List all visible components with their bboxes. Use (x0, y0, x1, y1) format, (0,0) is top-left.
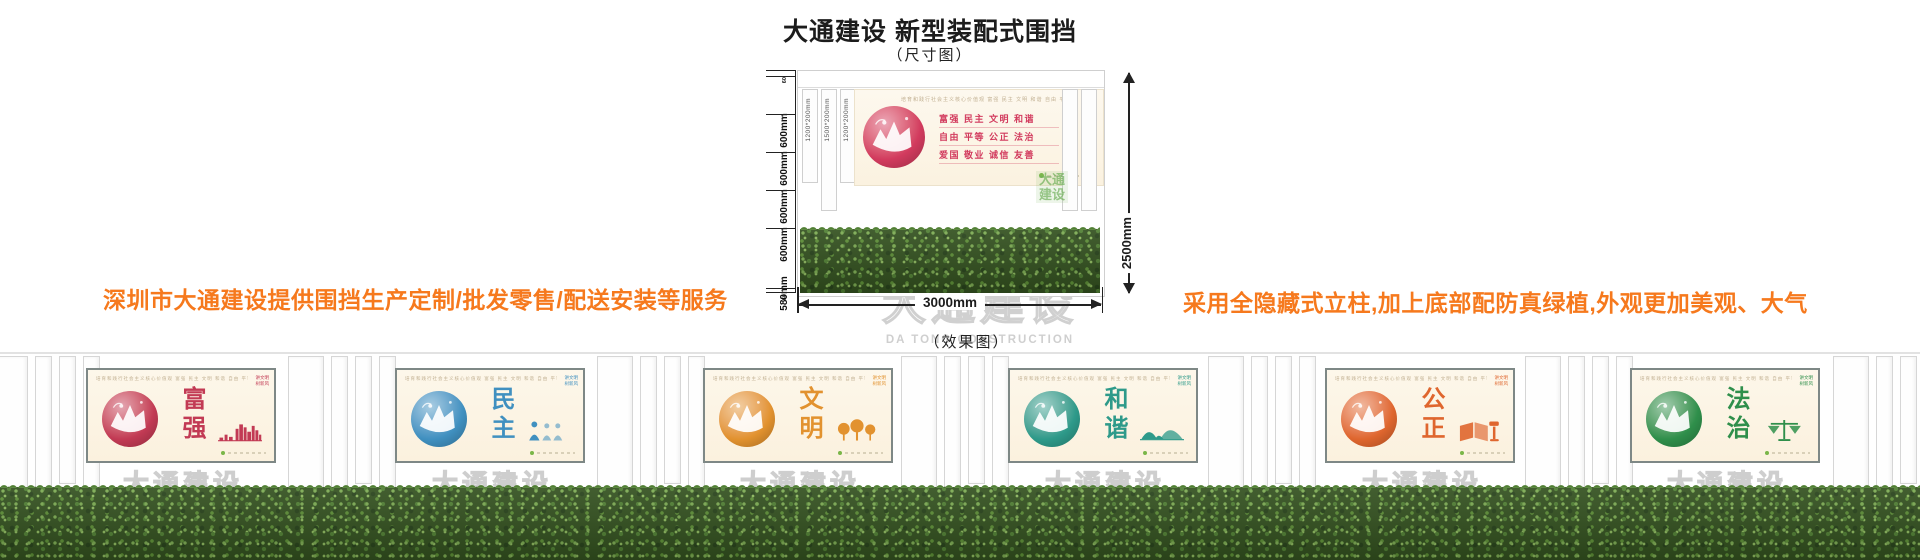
panel-corner-text: 讲文明树新风 (1495, 375, 1509, 386)
hidden-post-group (1525, 356, 1633, 500)
post-slat (1568, 356, 1585, 500)
post-size-label: 1500*200mm (824, 98, 831, 142)
panel-title: 富强 (174, 386, 209, 452)
fence-panel: 培育和践行社会主义核心价值观 富强 民主 文明 和谐 自由 平等 公正 法治 爱… (703, 368, 893, 463)
post-slat (597, 356, 633, 488)
green-dot-icon (838, 451, 842, 455)
page-title: 大通建设 新型装配式围挡 (630, 12, 1230, 48)
post-size-label: 1200*200mm (805, 98, 812, 142)
post (1081, 89, 1097, 211)
slogan-line: 自由 平等 公正 法治 (939, 130, 1059, 146)
fence-panel: 培育和践行社会主义核心价值观 富强 民主 文明 和谐 自由 平等 公正 法治 爱… (86, 368, 276, 463)
panel-corner-text: 讲文明树新风 (1178, 375, 1192, 386)
green-dot-icon (1765, 451, 1769, 455)
people-icon (527, 418, 571, 444)
panel-corner-text: 讲文明树新风 (1800, 375, 1814, 386)
panel-footer-mark (221, 451, 266, 455)
height-segment: 580mm (766, 228, 796, 288)
post-size-label: 1200*200mm (843, 98, 850, 142)
post: 1500*200mm (821, 89, 837, 211)
book-gavel-icon (1457, 418, 1501, 444)
fence-panel: 培育和践行社会主义核心价值观 富强 民主 文明 和谐 自由 平等 公正 法治 爱… (1630, 368, 1820, 463)
papercut-circle-art (863, 106, 925, 168)
slogan-line: 富强 民主 文明 和谐 (939, 112, 1059, 128)
panel-corner-text: 讲文明树新风 (873, 375, 887, 386)
post-slat (944, 356, 961, 500)
post-slat (331, 356, 348, 500)
panel-header-text: 培育和践行社会主义核心价值观 富强 民主 文明 和谐 自由 平等 公正 法治 爱… (405, 376, 557, 382)
green-dot-icon (1143, 451, 1147, 455)
panel-footer-mark (838, 451, 883, 455)
panel-header-text: 培育和践行社会主义核心价值观 富强 民主 文明 和谐 自由 平等 公正 法治 爱… (96, 376, 248, 382)
footer-dashes (537, 452, 575, 454)
post-slat (379, 356, 396, 496)
panel-footer-mark (1460, 451, 1505, 455)
dimension-diagram: 大通建设 DA TONG CONSTRUCTION 60600mm600mm60… (758, 65, 1158, 360)
arrow-right-icon (1091, 299, 1102, 309)
panel-title: 文明 (791, 386, 826, 452)
papercut-circle-art (1024, 391, 1080, 447)
post-slat (1299, 356, 1316, 496)
fence-panel: 培育和践行社会主义核心价值观 富强 民主 文明 和谐 自由 平等 公正 法治 爱… (395, 368, 585, 463)
panel-footer-mark (530, 451, 575, 455)
total-width-dimension: 3000mm (797, 297, 1103, 313)
papercut-overlay (1646, 391, 1702, 447)
post-slat (59, 356, 76, 484)
height-segment: 600mm (766, 76, 796, 114)
height-dim-label: 60 (782, 294, 788, 300)
papercut-circle-art (1646, 391, 1702, 447)
fence-panel: 培育和践行社会主义核心价值观 富强 民主 文明 和谐 自由 平等 公正 法治 爱… (1325, 368, 1515, 463)
post-slat (1592, 356, 1609, 484)
arrow-up-icon (1123, 72, 1135, 83)
total-height-label: 2500mm (1119, 213, 1134, 273)
papercut-circle-art (1341, 391, 1397, 447)
trees-icon (835, 418, 879, 444)
hidden-post-group (597, 356, 705, 500)
papercut-overlay (719, 391, 775, 447)
post-slat (1833, 356, 1869, 488)
panel-title: 和谐 (1096, 386, 1131, 452)
panel-corner-text: 讲文明树新风 (256, 375, 270, 386)
slogan-line: 爱国 敬业 诚信 友善 (939, 148, 1059, 164)
post-slat (1876, 356, 1893, 500)
hidden-post-group (1833, 356, 1920, 500)
post-slat (992, 356, 1009, 496)
scales-icon (1762, 418, 1806, 444)
fence-board: 1200*200mm1500*200mm1200*200mm 培育和践行社会主义… (797, 70, 1105, 297)
panel-header-text: 培育和践行社会主义核心价值观 富强 民主 文明 和谐 自由 平等 公正 法治 爱… (1335, 376, 1487, 382)
height-segment: 600mm (766, 114, 796, 152)
papercut-circle-art (102, 391, 158, 447)
left-service-note: 深圳市大通建设提供围挡生产定制/批发零售/配送安装等服务 (103, 281, 728, 315)
dimension-diagram-label: （尺寸图） (630, 44, 1230, 65)
city-skyline-icon (218, 418, 262, 444)
hedge-main (0, 487, 1920, 560)
footer-dashes (1467, 452, 1505, 454)
hidden-post-group (288, 356, 396, 500)
total-height-dimension: 2500mm (1120, 73, 1150, 293)
right-feature-note: 采用全隐藏式立柱,加上底部配防真绿植,外观更加美观、大气 (1183, 284, 1808, 318)
height-segment: 60 (766, 288, 796, 293)
height-segment: 600mm (766, 190, 796, 228)
datong-green-watermark: 大通建设 (1036, 171, 1068, 203)
effect-view: 培育和践行社会主义核心价值观 富强 民主 文明 和谐 自由 平等 公正 法治 爱… (0, 352, 1920, 560)
post-slat (968, 356, 985, 484)
top-rail (0, 352, 1920, 354)
post-slat (901, 356, 937, 488)
hedge-diagram (800, 229, 1100, 293)
hidden-post-group (1208, 356, 1316, 500)
height-segment: 600mm (766, 152, 796, 190)
footer-dashes (1772, 452, 1810, 454)
panel-title: 公正 (1413, 386, 1448, 452)
height-dimension-chain: 60600mm600mm600mm600mm580mm60 (766, 70, 796, 293)
post-slat (664, 356, 681, 484)
panel-title: 法治 (1718, 386, 1753, 452)
post-slat (640, 356, 657, 500)
footer-dashes (1150, 452, 1188, 454)
green-mark-line: 建设 (1037, 187, 1067, 202)
effect-diagram-label: （效果图） (767, 331, 1167, 352)
post-slat (35, 356, 52, 500)
core-values-slogans: 富强 民主 文明 和谐自由 平等 公正 法治爱国 敬业 诚信 友善 (939, 112, 1059, 166)
papercut-circle-art (719, 391, 775, 447)
footer-dashes (845, 452, 883, 454)
post-slat (1525, 356, 1561, 488)
panel-header-text: 培育和践行社会主义核心价值观 富强 民主 文明 和谐 自由 平等 公正 法治 爱… (1640, 376, 1792, 382)
papercut-overlay (863, 106, 925, 168)
total-width-label: 3000mm (915, 295, 985, 310)
post-slat (1275, 356, 1292, 484)
hidden-post-group (0, 356, 100, 500)
post-slat (0, 356, 28, 488)
fence-panel: 培育和践行社会主义核心价值观 富强 民主 文明 和谐 自由 平等 公正 法治 爱… (1008, 368, 1198, 463)
post-slat (1251, 356, 1268, 500)
footer-dashes (228, 452, 266, 454)
green-dot-icon (530, 451, 534, 455)
green-mark-line: 大通 (1037, 172, 1067, 187)
papercut-overlay (1341, 391, 1397, 447)
mountains-icon (1140, 418, 1184, 444)
panel-corner-text: 讲文明树新风 (565, 375, 579, 386)
post: 1200*200mm (802, 89, 818, 183)
hidden-post-group (901, 356, 1009, 500)
papercut-overlay (411, 391, 467, 447)
panel-title: 民主 (483, 386, 518, 452)
green-dot-icon (1460, 451, 1464, 455)
panel-footer-mark (1143, 451, 1188, 455)
top-rail (798, 87, 1104, 88)
green-dot-icon (221, 451, 225, 455)
arrow-down-icon (1123, 283, 1135, 294)
post-slat (355, 356, 372, 484)
hidden-posts-left: 1200*200mm1500*200mm1200*200mm (802, 89, 856, 211)
panel-footer-mark (1765, 451, 1810, 455)
panel-header-text: 培育和践行社会主义核心价值观 富强 民主 文明 和谐 自由 平等 公正 法治 爱… (901, 96, 1073, 103)
post-slat (1900, 356, 1917, 484)
arrow-left-icon (798, 299, 809, 309)
papercut-overlay (102, 391, 158, 447)
post-slat (288, 356, 324, 488)
papercut-circle-art (411, 391, 467, 447)
panel-header-text: 培育和践行社会主义核心价值观 富强 民主 文明 和谐 自由 平等 公正 法治 爱… (713, 376, 865, 382)
panel-header-text: 培育和践行社会主义核心价值观 富强 民主 文明 和谐 自由 平等 公正 法治 爱… (1018, 376, 1170, 382)
post-slat (1208, 356, 1244, 488)
papercut-overlay (1024, 391, 1080, 447)
poster: 大通建设 新型装配式围挡 （尺寸图） 大通建设 DA TONG CONSTRUC… (0, 0, 1920, 560)
